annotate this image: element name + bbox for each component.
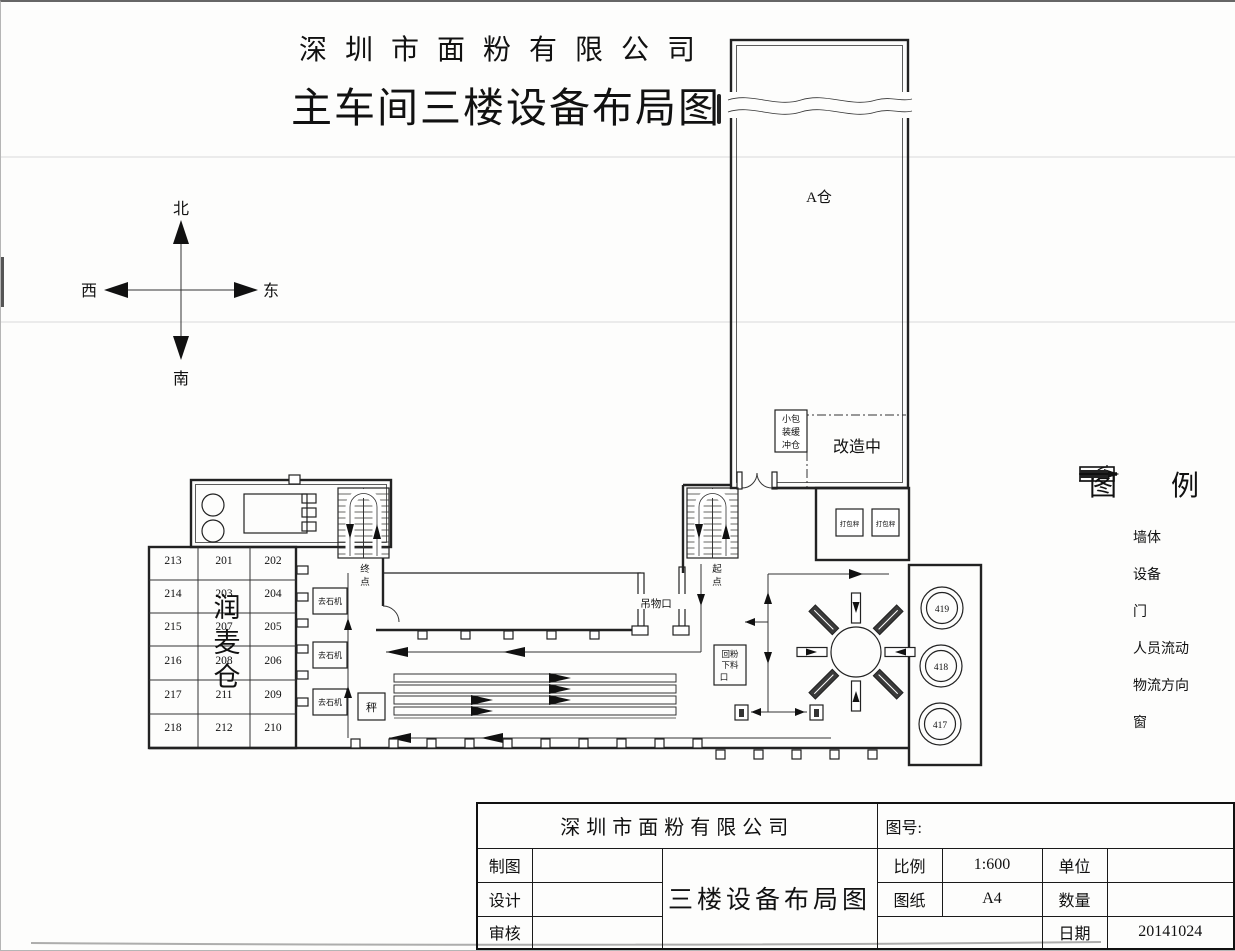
svg-text:仓: 仓 [214,662,241,692]
packing-scale-room: 打包秤 打包秤 [816,488,909,560]
svg-text:下料: 下料 [721,660,739,670]
design-value [532,882,662,916]
legend: 图例 墙体 设备 门 [1077,464,1232,740]
renovation-label: 改造中 [833,438,881,456]
silo-column: 419 418 417 [909,565,981,765]
scale-box: 秤 [366,701,377,714]
staircase-west [338,488,389,558]
paper-label: 图纸 [877,882,942,916]
room-cell: 218 [164,722,182,734]
svg-text:口: 口 [720,672,729,682]
legend-item-equipment: 设备 [1077,555,1232,592]
compass-south: 南 [173,370,189,388]
corridor: 吊物口 [376,558,689,639]
svg-text:润: 润 [214,593,241,623]
small-pack-buffer: 冲仓 [782,439,800,450]
room-cell: 214 [164,588,182,600]
room-cell: 216 [164,655,182,667]
legend-item-door: 门 [1077,592,1232,629]
legend-item-person-flow: 人员流动 [1077,629,1232,666]
date-label: 日期 [1042,916,1107,949]
design-label: 设计 [477,882,532,916]
staircase-east [683,485,738,573]
production-lines [394,673,676,718]
silo-418: 418 [934,663,949,673]
room-cell: 206 [264,655,282,667]
room-cell: 201 [215,555,233,567]
warehouse-a-label: A仓 [806,189,832,206]
draft-value [532,848,662,882]
svg-text:回粉: 回粉 [721,649,739,659]
compass-east: 东 [263,282,279,300]
legend-item-material-flow: 物流方向 [1077,666,1232,703]
destoner-3: 去石机 [318,697,342,707]
legend-item-window: 窗 [1077,703,1232,740]
start-point-label: 起 [712,564,722,575]
quantity-label: 数量 [1042,882,1107,916]
room-cell: 204 [264,588,282,600]
quantity-value [1107,882,1234,916]
review-label: 审核 [477,916,532,949]
room-cell: 215 [164,621,182,633]
return-flour-box: 回粉 下料 口 [714,645,746,685]
empty-cell [877,916,1042,949]
tempering-bin-label: 润 麦 仓 [214,593,241,692]
warehouse-a: A仓 小包 装缓 冲仓 改造中 [727,40,912,490]
svg-text:麦: 麦 [214,628,241,658]
destoner-1: 去石机 [318,596,342,606]
end-point-label: 点 [360,577,370,588]
hoist-opening-label: 吊物口 [640,597,672,610]
scanned-drawing-page: 深圳市面粉有限公司 主车间三楼设备布局图 北 南 西 东 [0,0,1235,951]
date-value: 20141024 [1107,916,1234,949]
room-cell: 210 [264,722,282,734]
rotary-carousel [797,593,915,711]
legend-item-wall: 墙体 [1077,518,1232,555]
unit-value [1107,848,1234,882]
compass-west: 西 [81,283,97,300]
packing-scale-2: 打包秤 [876,519,896,528]
south-wall [149,739,909,759]
small-pack-buffer: 装缓 [782,426,800,437]
unit-label: 单位 [1042,848,1107,882]
silo-419: 419 [935,605,950,615]
compass: 北 南 西 东 [81,200,279,388]
scale-value: 1:600 [942,848,1042,882]
room-cell: 205 [264,621,282,633]
packing-scale-1: 打包秤 [840,519,860,528]
destoner-area: 去石机 去石机 去石机 秤 [313,588,385,720]
room-cell: 202 [264,555,282,567]
scale-label: 比例 [877,848,942,882]
room-cell: 217 [164,689,182,701]
end-point-label: 终 [360,563,370,575]
room-cell: 209 [264,689,282,701]
draft-label: 制图 [477,848,532,882]
room-grid: 213 201 202 214 203 204 215 207 205 216 … [149,547,308,748]
room-cell: 212 [215,722,233,734]
small-pack-buffer: 小包 [782,413,800,424]
titleblock-drawing-title: 三楼设备布局图 [662,848,877,949]
title-block: 深圳市面粉有限公司 图号: 制图 三楼设备布局图 比例 1:600 单位 设计 … [476,802,1235,950]
paper-value: A4 [942,882,1042,916]
destoner-2: 去石机 [318,650,342,660]
review-value [532,916,662,949]
compass-north: 北 [173,200,189,218]
titleblock-company: 深圳市面粉有限公司 [477,803,877,848]
drawing-no-label: 图号: [877,803,1234,848]
start-point-label: 点 [712,577,722,588]
room-cell: 213 [164,555,182,567]
silo-417: 417 [933,721,948,731]
